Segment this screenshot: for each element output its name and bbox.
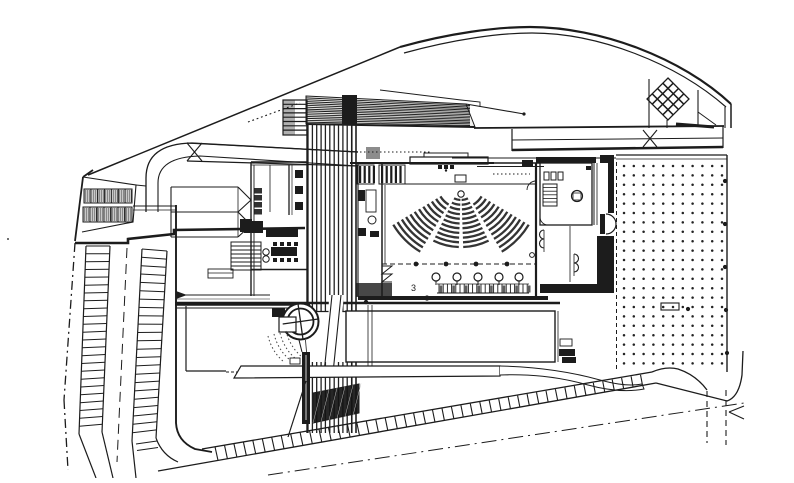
svg-text:3: 3: [411, 283, 416, 293]
